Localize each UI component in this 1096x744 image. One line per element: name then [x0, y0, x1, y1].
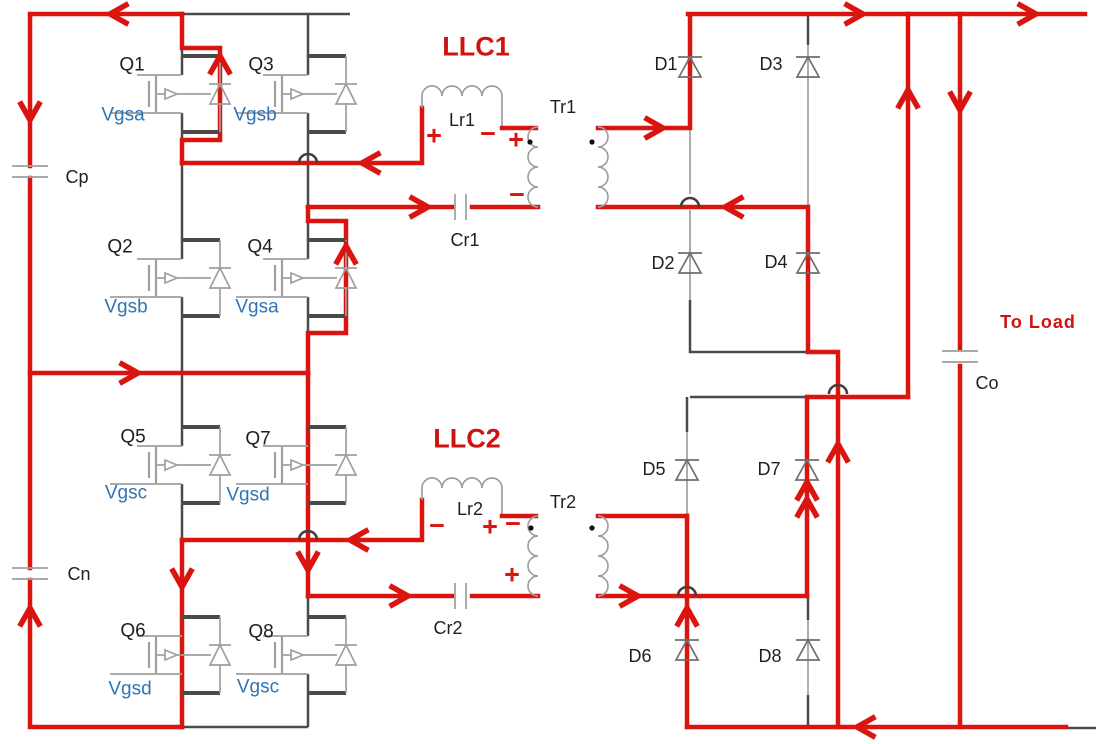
polarity-tr1-top-plus: + — [508, 127, 524, 154]
load-label: To Load — [1000, 313, 1076, 331]
capacitor-cn-label: Cn — [67, 565, 90, 583]
stage-llc1-title: LLC1 — [442, 34, 510, 61]
capacitor-co-label: Co — [975, 374, 998, 392]
inductor-lr1-symbol — [422, 86, 502, 108]
capacitor-cr2-symbol — [455, 583, 466, 609]
polarity-lr2-left-minus: − — [429, 513, 445, 540]
transformer-tr2-secondary-winding — [598, 516, 608, 596]
capacitor-cr1-label: Cr1 — [450, 231, 479, 249]
diode-d8-label: D8 — [758, 647, 781, 665]
gate-signal-q5-label: Vgsc — [105, 484, 147, 503]
mosfet-q6-label: Q6 — [120, 622, 145, 641]
capacitor-cr2-label: Cr2 — [433, 619, 462, 637]
mosfet-q4-label: Q4 — [247, 238, 272, 257]
q1-conduction-path — [182, 14, 220, 163]
mosfet-q1-label: Q1 — [119, 56, 144, 75]
mosfet-q2-label: Q2 — [107, 238, 132, 257]
gate-signal-q1-label: Vgsa — [101, 106, 144, 125]
mosfet-q5-label: Q5 — [120, 428, 145, 447]
gate-signal-q6-label: Vgsd — [108, 680, 151, 699]
diode-d6-label: D6 — [628, 647, 651, 665]
transformer-tr2-label: Tr2 — [550, 493, 576, 511]
circuit-diagram: Q1 Q3 Q2 Q4 Q5 Q7 Q6 Q8 Vgsa Vgsb Vgsb V… — [0, 0, 1096, 744]
arrow-layer — [21, 5, 1036, 736]
transformer-tr1-secondary-winding — [598, 127, 608, 207]
polarity-tr2-top-minus: − — [505, 511, 521, 538]
diode-d3-label: D3 — [759, 55, 782, 73]
stage-llc2-title: LLC2 — [433, 426, 501, 453]
polarity-lr2-right-plus: + — [482, 514, 498, 541]
polarity-lr1-left-plus: + — [426, 123, 442, 150]
gate-signal-q8-label: Vgsc — [237, 678, 279, 697]
mosfet-q3-label: Q3 — [248, 56, 273, 75]
capacitor-co-symbol — [942, 351, 978, 362]
diode-d1-label: D1 — [654, 55, 677, 73]
polarity-tr2-bottom-plus: + — [504, 562, 520, 589]
gate-signal-q3-label: Vgsb — [233, 106, 276, 125]
inductor-lr2-label: Lr2 — [457, 500, 483, 518]
tr1-primary-dot — [527, 139, 532, 144]
current-path-layer — [30, 14, 1085, 727]
capacitor-cr1-symbol — [455, 194, 466, 220]
transformer-tr1-primary-winding — [528, 127, 538, 207]
polarity-tr1-bottom-minus: − — [509, 182, 525, 209]
inductor-lr1-label: Lr1 — [449, 111, 475, 129]
mosfet-q7-label: Q7 — [245, 430, 270, 449]
diode-d4-label: D4 — [764, 253, 787, 271]
transformer-tr1-label: Tr1 — [550, 98, 576, 116]
circuit-canvas — [0, 0, 1096, 744]
tr1-secondary-dot — [589, 139, 594, 144]
polarity-lr1-right-minus: − — [480, 121, 496, 148]
tr2-secondary-dot — [589, 525, 594, 530]
gate-signal-q4-label: Vgsa — [235, 298, 278, 317]
wire-hop-layer — [299, 154, 847, 596]
capacitor-cp-label: Cp — [65, 168, 88, 186]
tr2-primary-dot — [528, 525, 533, 530]
q4-conduction-path — [308, 207, 346, 373]
inductor-lr2-symbol — [422, 478, 502, 500]
diode-d5-label: D5 — [642, 460, 665, 478]
gate-signal-q7-label: Vgsd — [226, 486, 269, 505]
gate-signal-q2-label: Vgsb — [104, 298, 147, 317]
diode-d2-label: D2 — [651, 254, 674, 272]
diode-d7-label: D7 — [757, 460, 780, 478]
mosfet-q8-label: Q8 — [248, 623, 273, 642]
